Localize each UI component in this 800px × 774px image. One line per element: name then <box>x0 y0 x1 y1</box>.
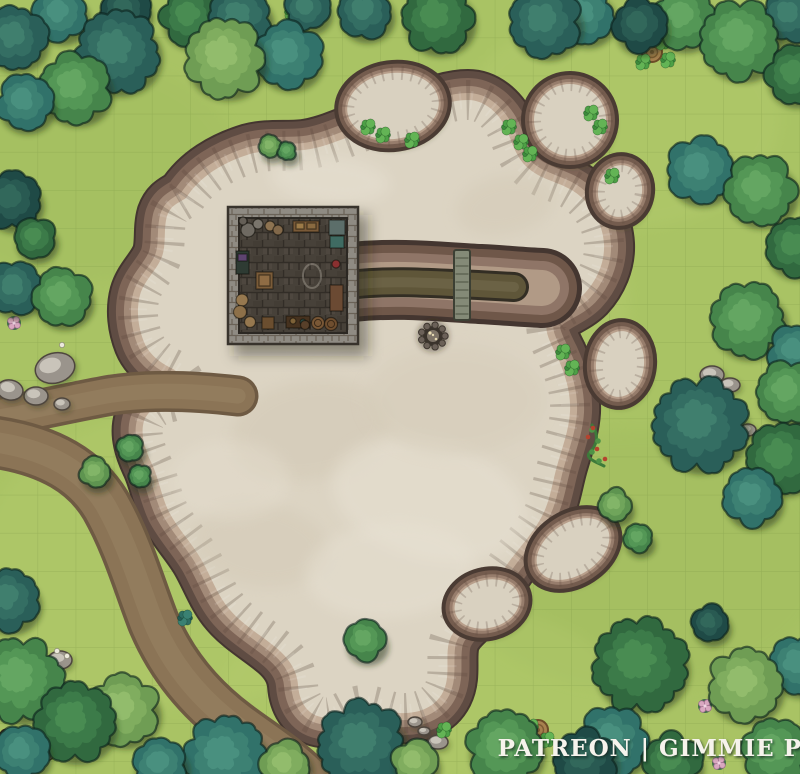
tree <box>0 74 56 135</box>
barrel-prop <box>245 317 256 328</box>
grass-tuft <box>570 360 579 369</box>
battle-map: PATREON | GIMMIE PIG <box>0 0 800 774</box>
grass-tuft <box>610 168 619 177</box>
grass-tuft <box>410 132 419 141</box>
grass-tuft <box>366 119 375 128</box>
watermark-text: PATREON | GIMMIE PIG <box>498 735 800 762</box>
scene-layers <box>0 0 800 774</box>
grass-tuft <box>589 105 598 114</box>
white-flower <box>54 648 59 653</box>
barrel-prop <box>290 318 296 324</box>
grass-tuft <box>183 610 192 619</box>
grass-tuft <box>442 722 451 731</box>
barrel-prop <box>273 225 283 235</box>
furniture-prop <box>262 317 274 329</box>
furniture-prop <box>329 220 345 235</box>
barrel-prop <box>312 317 325 330</box>
barrel-prop <box>325 318 338 331</box>
grass-tuft <box>598 119 607 128</box>
furniture-prop <box>259 275 270 286</box>
barrel-prop <box>234 306 247 319</box>
furniture-prop <box>330 285 343 311</box>
grass-tuft <box>528 146 537 155</box>
campfire <box>417 320 449 352</box>
grass-tuft <box>507 119 516 128</box>
stone-building <box>228 207 368 356</box>
grass-tuft <box>666 52 675 61</box>
map-stage: PATREON | GIMMIE PIG <box>0 0 800 774</box>
grass-tuft <box>519 134 528 143</box>
white-flower <box>59 342 64 347</box>
furniture-prop <box>296 223 304 229</box>
barrel-prop <box>332 260 340 268</box>
barrel-prop <box>253 219 263 229</box>
tree <box>0 726 52 774</box>
trench <box>352 280 542 288</box>
white-flower <box>64 653 69 658</box>
furniture-prop <box>307 223 316 229</box>
grass-tuft <box>561 344 570 353</box>
furniture-prop <box>238 254 247 261</box>
plank-bridge <box>454 250 470 320</box>
barrel-prop <box>301 321 310 330</box>
furniture-prop <box>330 236 344 248</box>
grass-tuft <box>381 127 390 136</box>
barrel-prop <box>236 294 248 306</box>
barrel-prop <box>239 217 247 225</box>
